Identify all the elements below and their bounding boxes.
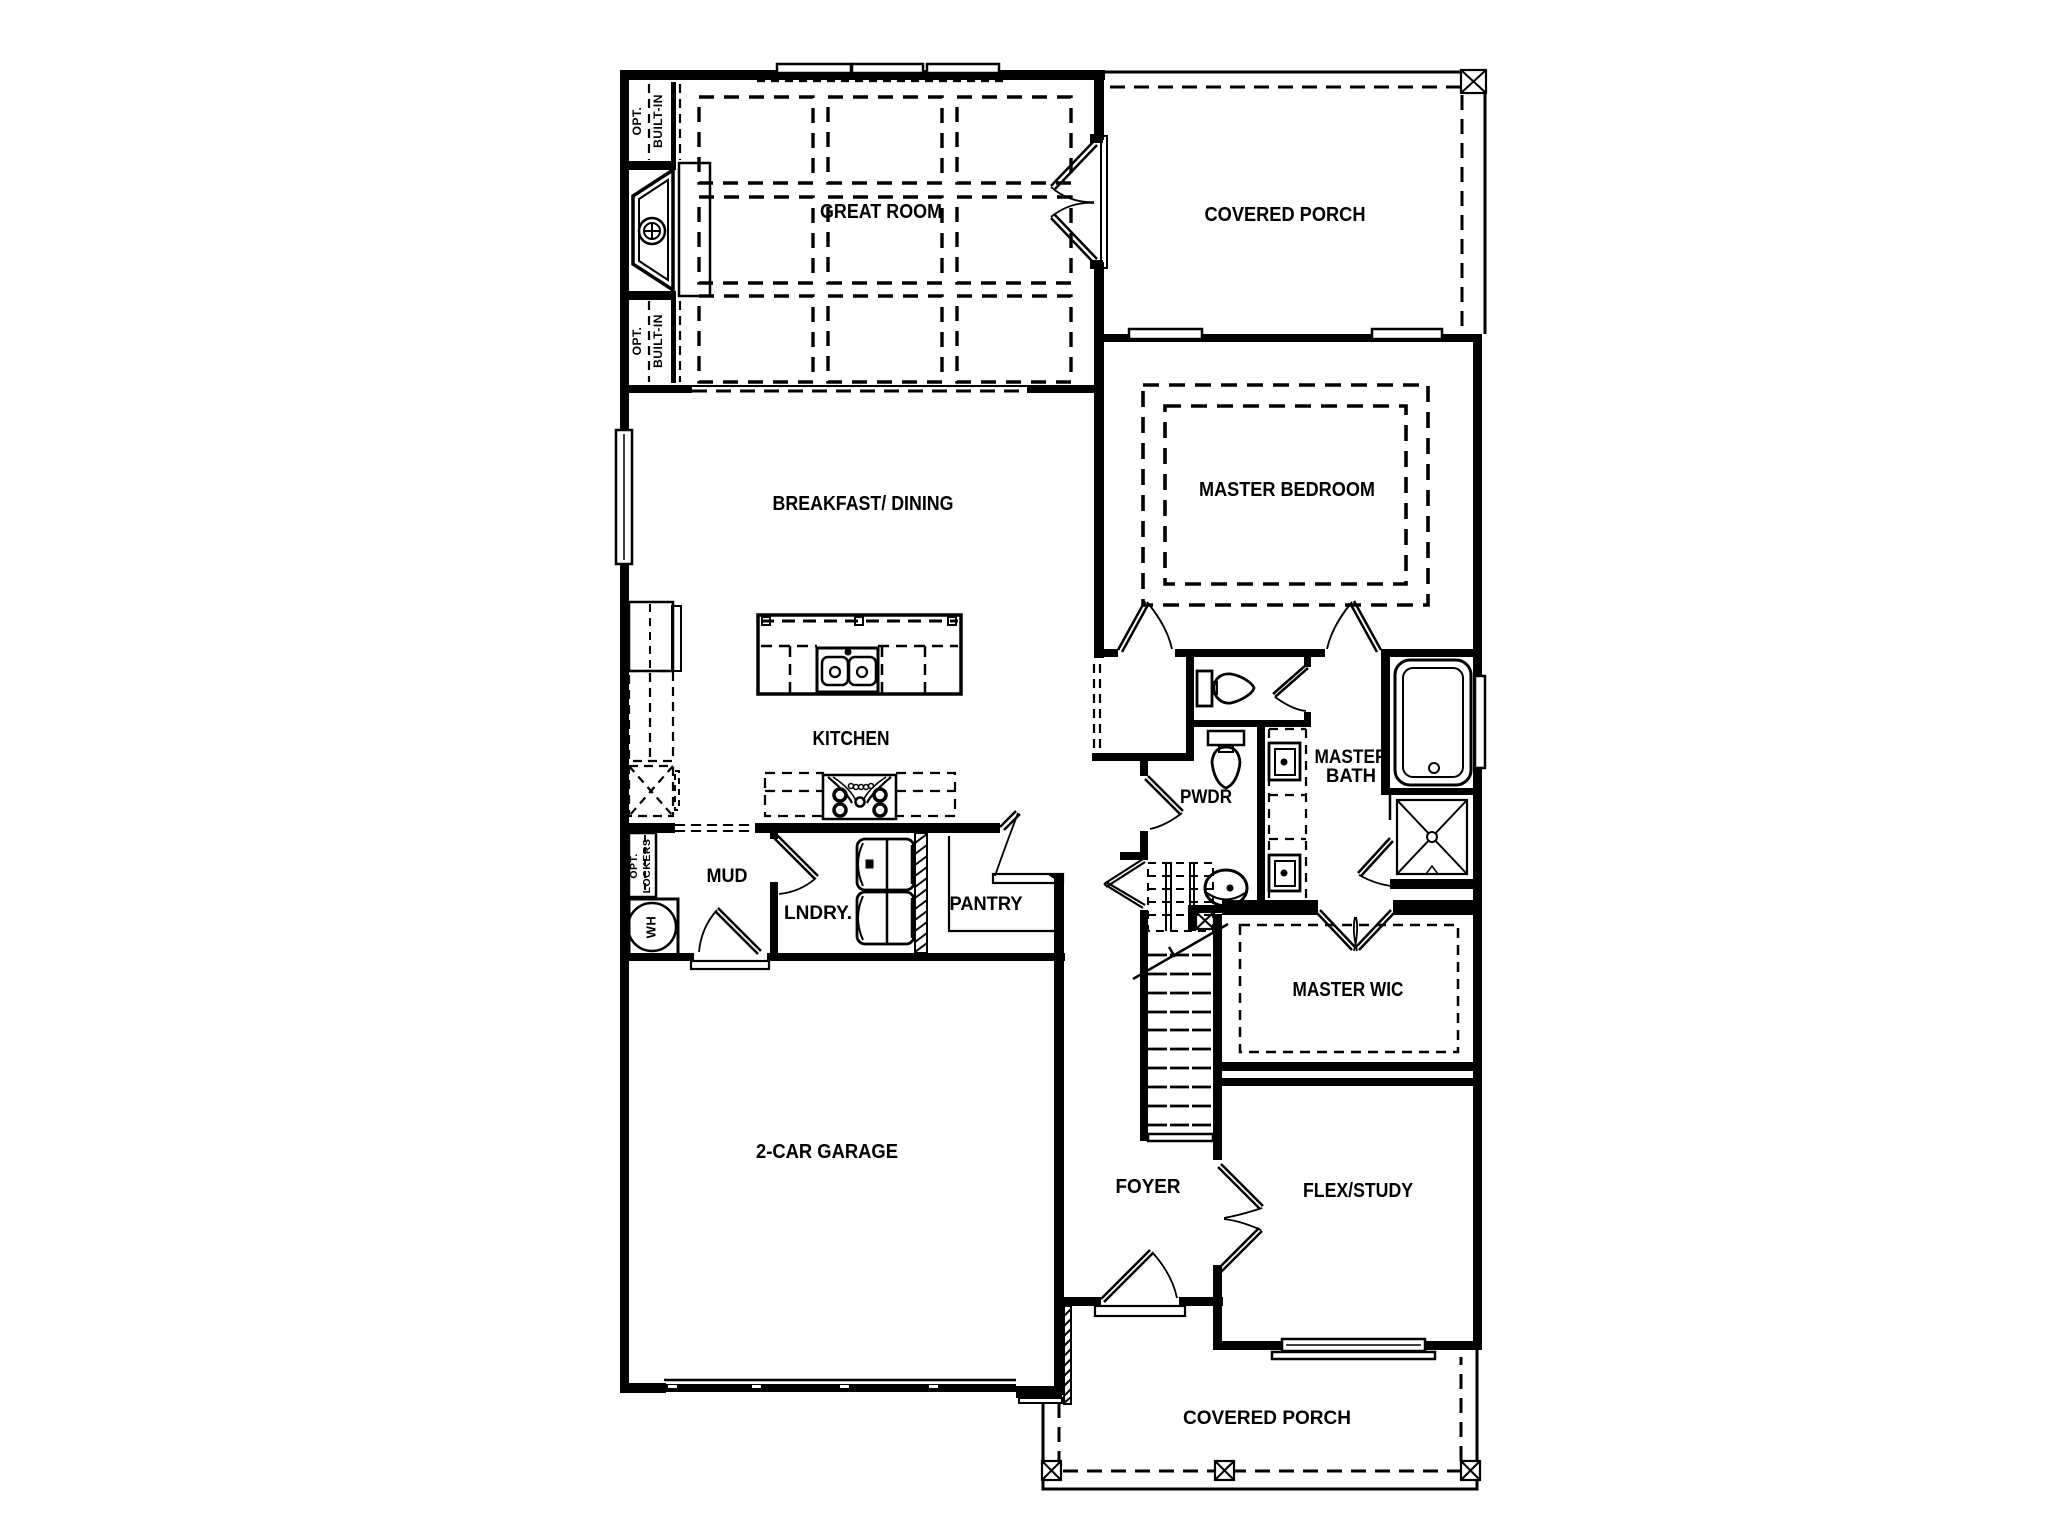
svg-text:BATH: BATH: [1326, 766, 1376, 787]
svg-text:COVERED PORCH: COVERED PORCH: [1205, 204, 1366, 226]
svg-text:OPT.: OPT.: [630, 107, 644, 136]
svg-text:2-CAR GARAGE: 2-CAR GARAGE: [756, 1141, 898, 1163]
svg-text:BREAKFAST/ DINING: BREAKFAST/ DINING: [773, 493, 954, 515]
svg-text:BUILT-IN: BUILT-IN: [651, 314, 665, 368]
svg-text:PWDR: PWDR: [1180, 787, 1232, 808]
svg-text:OPT.: OPT.: [628, 853, 640, 878]
svg-text:OPT.: OPT.: [630, 327, 644, 356]
svg-text:MASTER: MASTER: [1315, 747, 1388, 768]
svg-text:MASTER BEDROOM: MASTER BEDROOM: [1199, 479, 1375, 501]
svg-text:MUD: MUD: [707, 866, 748, 887]
svg-text:GREAT ROOM: GREAT ROOM: [820, 201, 942, 223]
svg-text:FLEX/STUDY: FLEX/STUDY: [1303, 1180, 1414, 1202]
svg-text:KITCHEN: KITCHEN: [813, 728, 890, 750]
svg-text:LOCKERS: LOCKERS: [641, 839, 653, 894]
svg-text:MASTER WIC: MASTER WIC: [1293, 979, 1404, 1001]
svg-text:PANTRY: PANTRY: [950, 894, 1023, 915]
svg-text:LNDRY.: LNDRY.: [784, 903, 852, 924]
svg-text:WH: WH: [643, 916, 658, 939]
svg-text:BUILT-IN: BUILT-IN: [651, 94, 665, 148]
svg-text:COVERED PORCH: COVERED PORCH: [1183, 1408, 1351, 1429]
svg-text:FOYER: FOYER: [1116, 1176, 1182, 1198]
